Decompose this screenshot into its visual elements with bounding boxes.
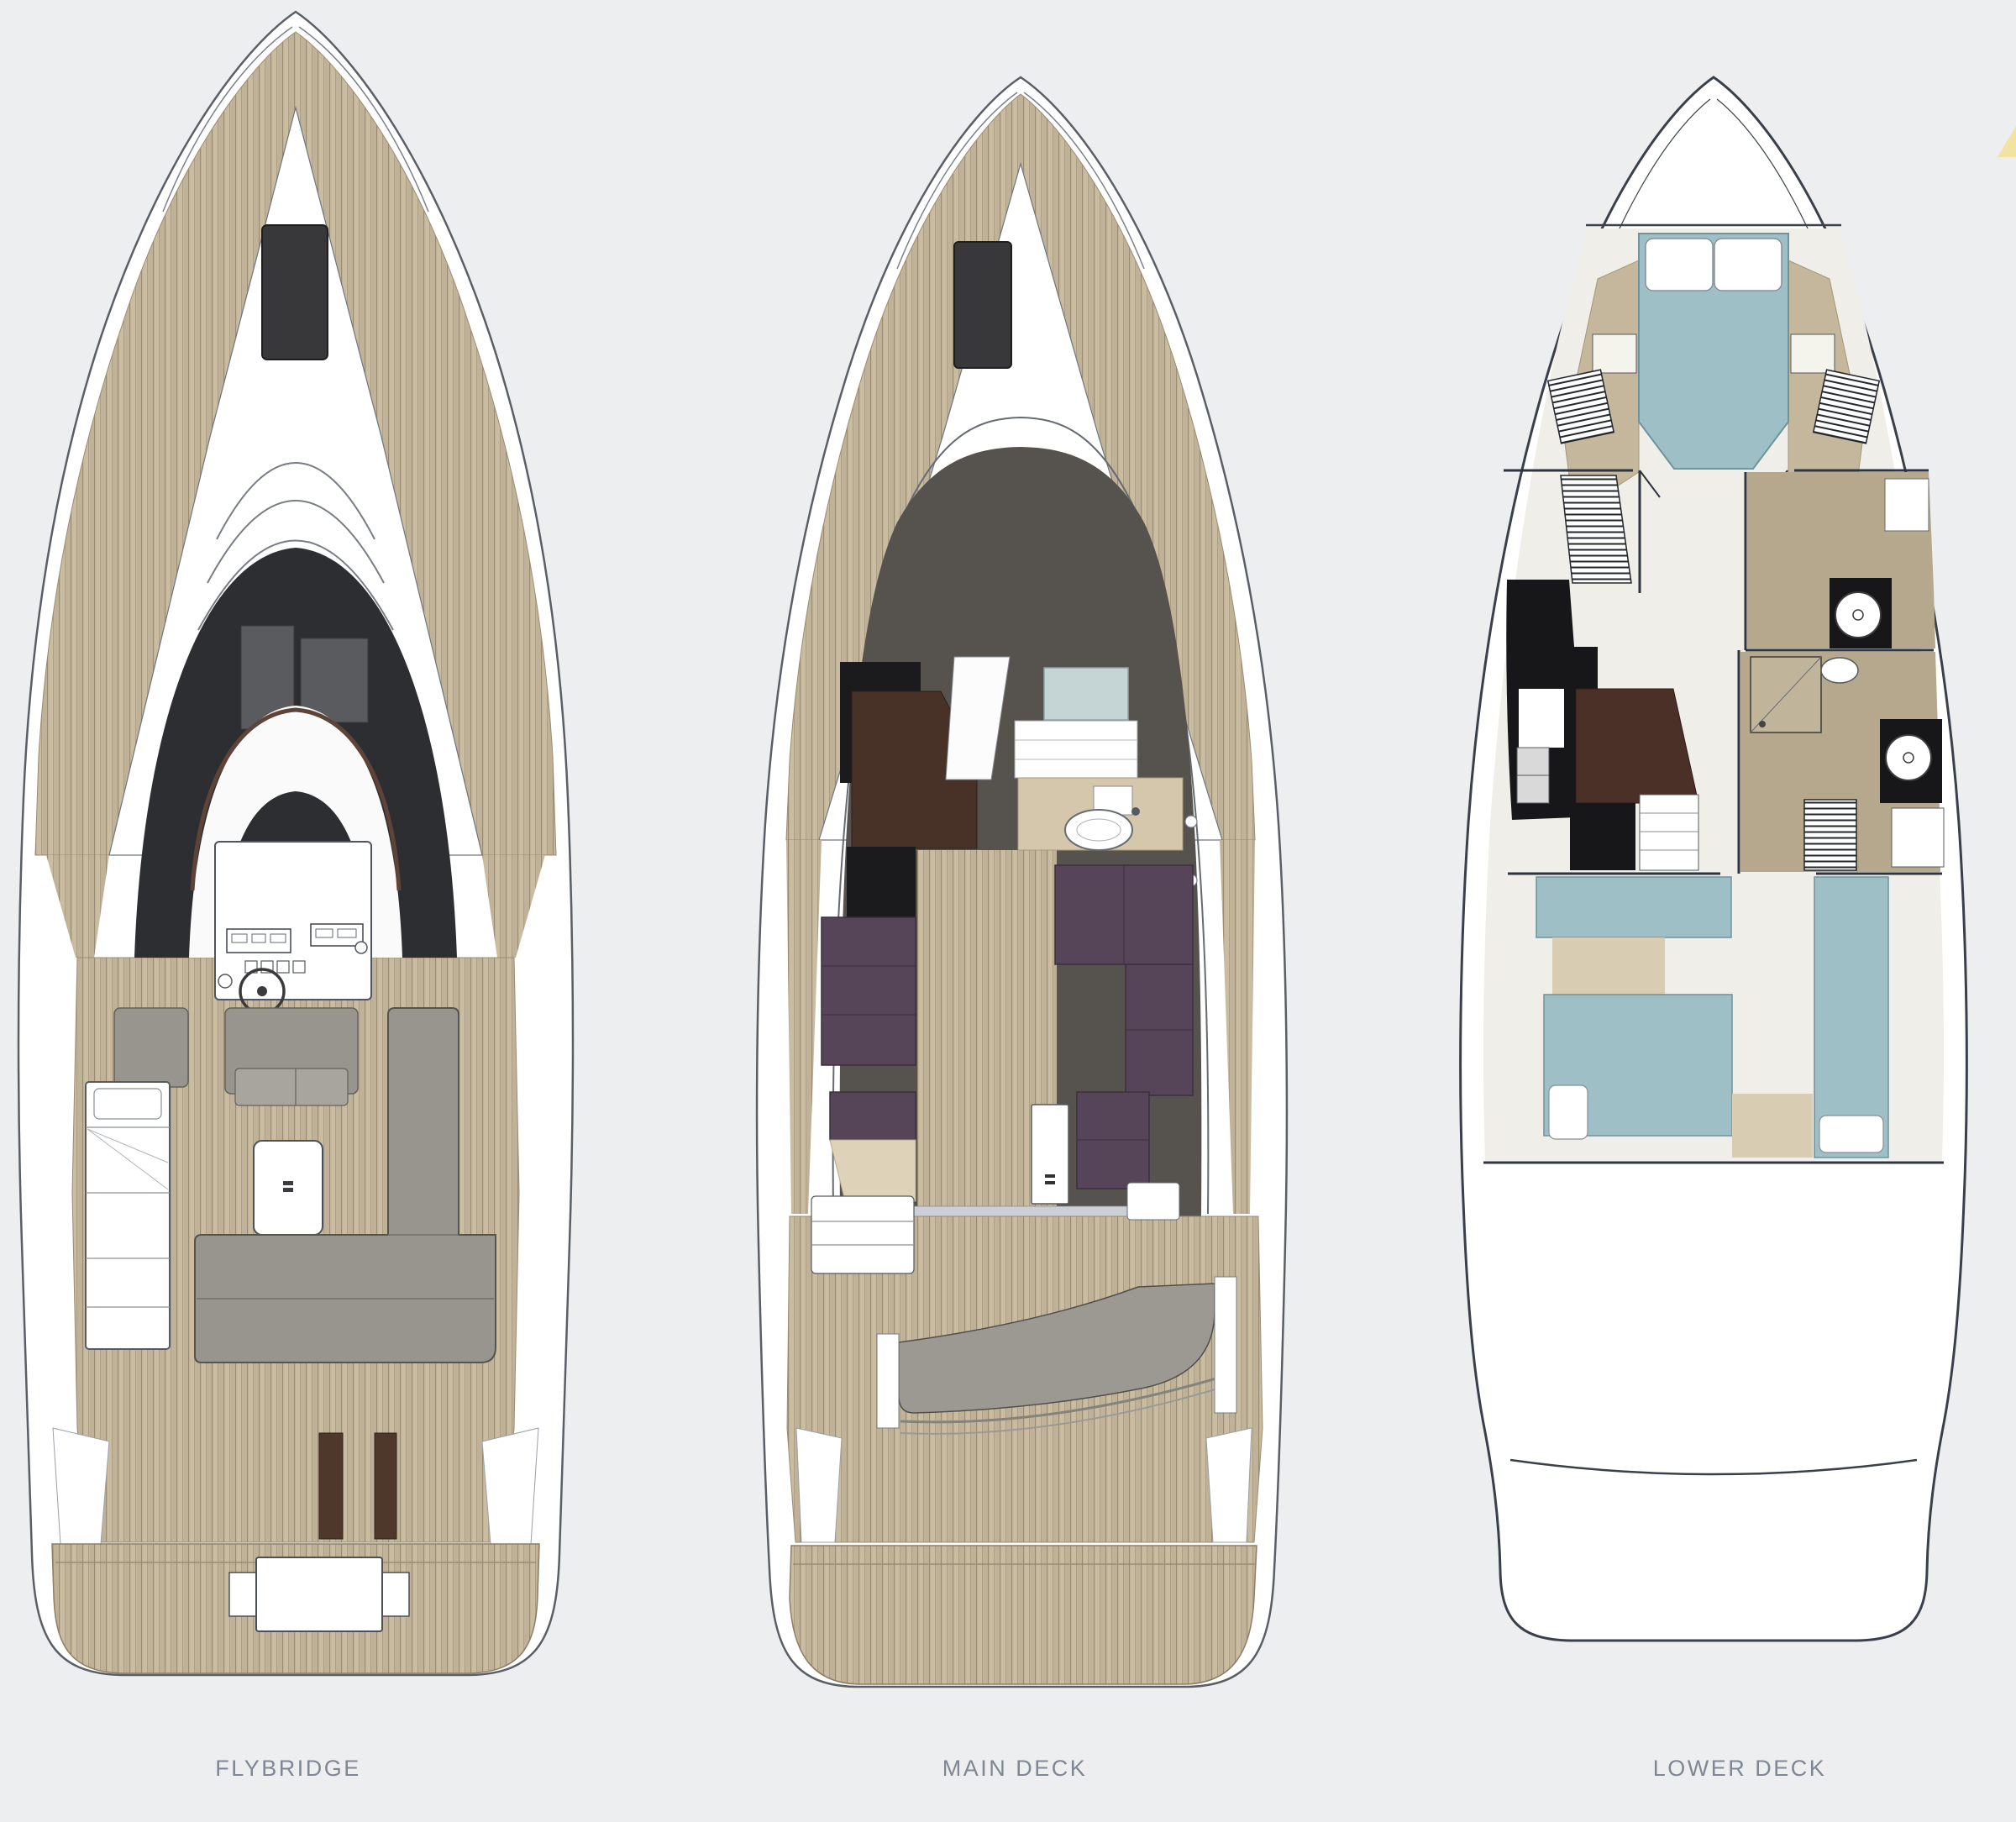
caption-main-deck: MAIN DECK	[942, 1756, 1088, 1782]
cockpit-table	[254, 1141, 323, 1235]
seat-wedge	[830, 1140, 916, 1201]
vanity	[1885, 479, 1929, 531]
cockpit-steps	[811, 1196, 914, 1273]
tv-screen	[1044, 668, 1128, 720]
pillow	[1646, 239, 1713, 291]
foredeck-hatch	[954, 242, 1011, 368]
stern-locker-starboard	[482, 1428, 538, 1544]
bench-post	[1215, 1277, 1236, 1413]
sink	[1821, 658, 1858, 683]
port-sofa	[822, 917, 916, 1201]
seat-bench	[1892, 808, 1944, 867]
deck-plans-figure	[0, 0, 2016, 1822]
helm-console	[215, 842, 371, 1013]
transom-strut	[319, 1433, 343, 1539]
door-track	[880, 1206, 1134, 1216]
cockpit-seat-base	[1127, 1183, 1179, 1220]
swim-platform	[790, 1546, 1257, 1684]
sink	[1065, 810, 1132, 850]
main-deck-plan	[757, 77, 1287, 1687]
transom-strut	[375, 1433, 396, 1539]
berth-filler	[1552, 937, 1665, 995]
caption-lower-deck: LOWER DECK	[1653, 1756, 1827, 1782]
pillow	[1819, 1116, 1883, 1153]
flybridge-plan	[18, 12, 573, 1675]
pillow	[1549, 1085, 1588, 1139]
nightstand	[1791, 334, 1835, 373]
berth-filler	[1732, 1094, 1813, 1158]
port-cabinet-aft	[847, 847, 916, 917]
foredeck-hatch	[262, 225, 328, 360]
page-corner-mark	[1998, 126, 2016, 157]
transom-gate	[229, 1557, 409, 1631]
stern-locker-port	[53, 1428, 109, 1544]
bench-post	[877, 1334, 899, 1428]
stern-locker-starboard	[1206, 1428, 1252, 1542]
faucet	[1131, 807, 1140, 816]
toilet	[1835, 592, 1881, 638]
salon-door	[1032, 1105, 1068, 1204]
drawer-unit	[1640, 795, 1698, 870]
midship-cabin	[1536, 877, 1888, 1158]
toilet	[1886, 735, 1931, 780]
cabinet-black	[1570, 803, 1635, 870]
lower-deck-plan	[1461, 77, 1967, 1641]
forward-head	[1747, 472, 1935, 648]
hull-window	[1519, 689, 1564, 748]
wet-bar-galley	[86, 1082, 170, 1349]
nightstand	[1593, 334, 1636, 373]
deck-plans-page: FLYBRIDGE MAIN DECK LOWER DECK	[0, 0, 2016, 1822]
stern-locker-port	[796, 1428, 842, 1542]
berth-blue	[1536, 877, 1731, 937]
pillow	[1714, 239, 1782, 291]
shower-drain	[1759, 721, 1766, 727]
caption-flybridge: FLYBRIDGE	[215, 1756, 361, 1782]
wardrobe-louvered	[1804, 800, 1856, 870]
